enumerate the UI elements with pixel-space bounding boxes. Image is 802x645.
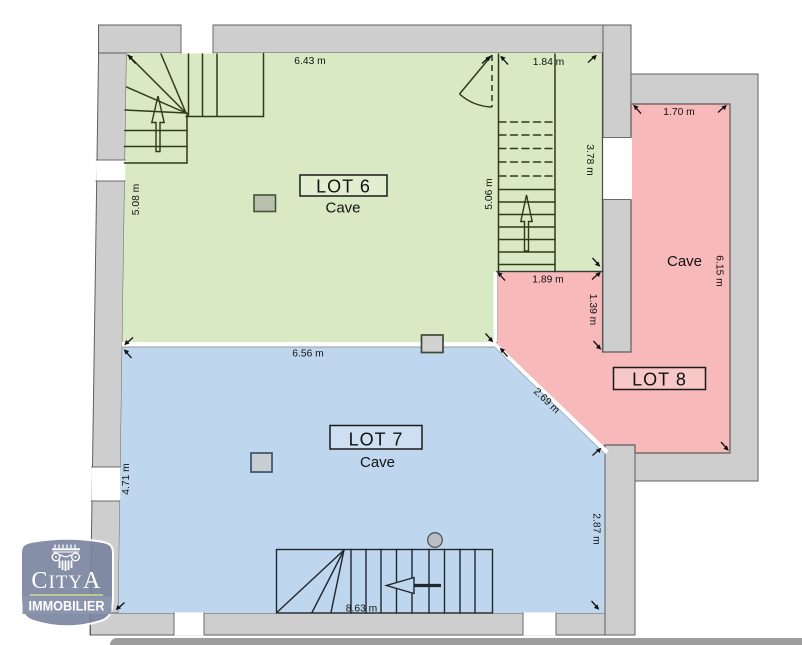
svg-text:1.70 m: 1.70 m <box>663 107 694 118</box>
svg-text:6.43 m: 6.43 m <box>294 56 325 67</box>
svg-text:IMMOBILIER: IMMOBILIER <box>29 599 105 614</box>
svg-text:LOT 7: LOT 7 <box>349 430 404 450</box>
svg-text:6.56 m: 6.56 m <box>292 349 323 360</box>
svg-text:LOT 6: LOT 6 <box>316 177 371 197</box>
svg-text:5.06 m: 5.06 m <box>484 178 495 209</box>
svg-text:Cave: Cave <box>667 253 702 270</box>
svg-text:6.15 m: 6.15 m <box>714 255 725 286</box>
svg-text:1.89 m: 1.89 m <box>532 275 563 286</box>
svg-text:LOT 8: LOT 8 <box>632 370 687 390</box>
svg-text:4.71 m: 4.71 m <box>121 463 132 494</box>
svg-text:Cave: Cave <box>325 200 360 217</box>
svg-text:1.39 m: 1.39 m <box>587 294 598 325</box>
svg-text:3.78 m: 3.78 m <box>584 144 595 175</box>
svg-text:5.08 m: 5.08 m <box>131 184 142 215</box>
svg-text:8.63 m: 8.63 m <box>346 604 377 615</box>
svg-text:2.87 m: 2.87 m <box>591 513 602 544</box>
svg-text:1.84 m: 1.84 m <box>533 57 564 68</box>
svg-text:Cave: Cave <box>360 454 395 471</box>
